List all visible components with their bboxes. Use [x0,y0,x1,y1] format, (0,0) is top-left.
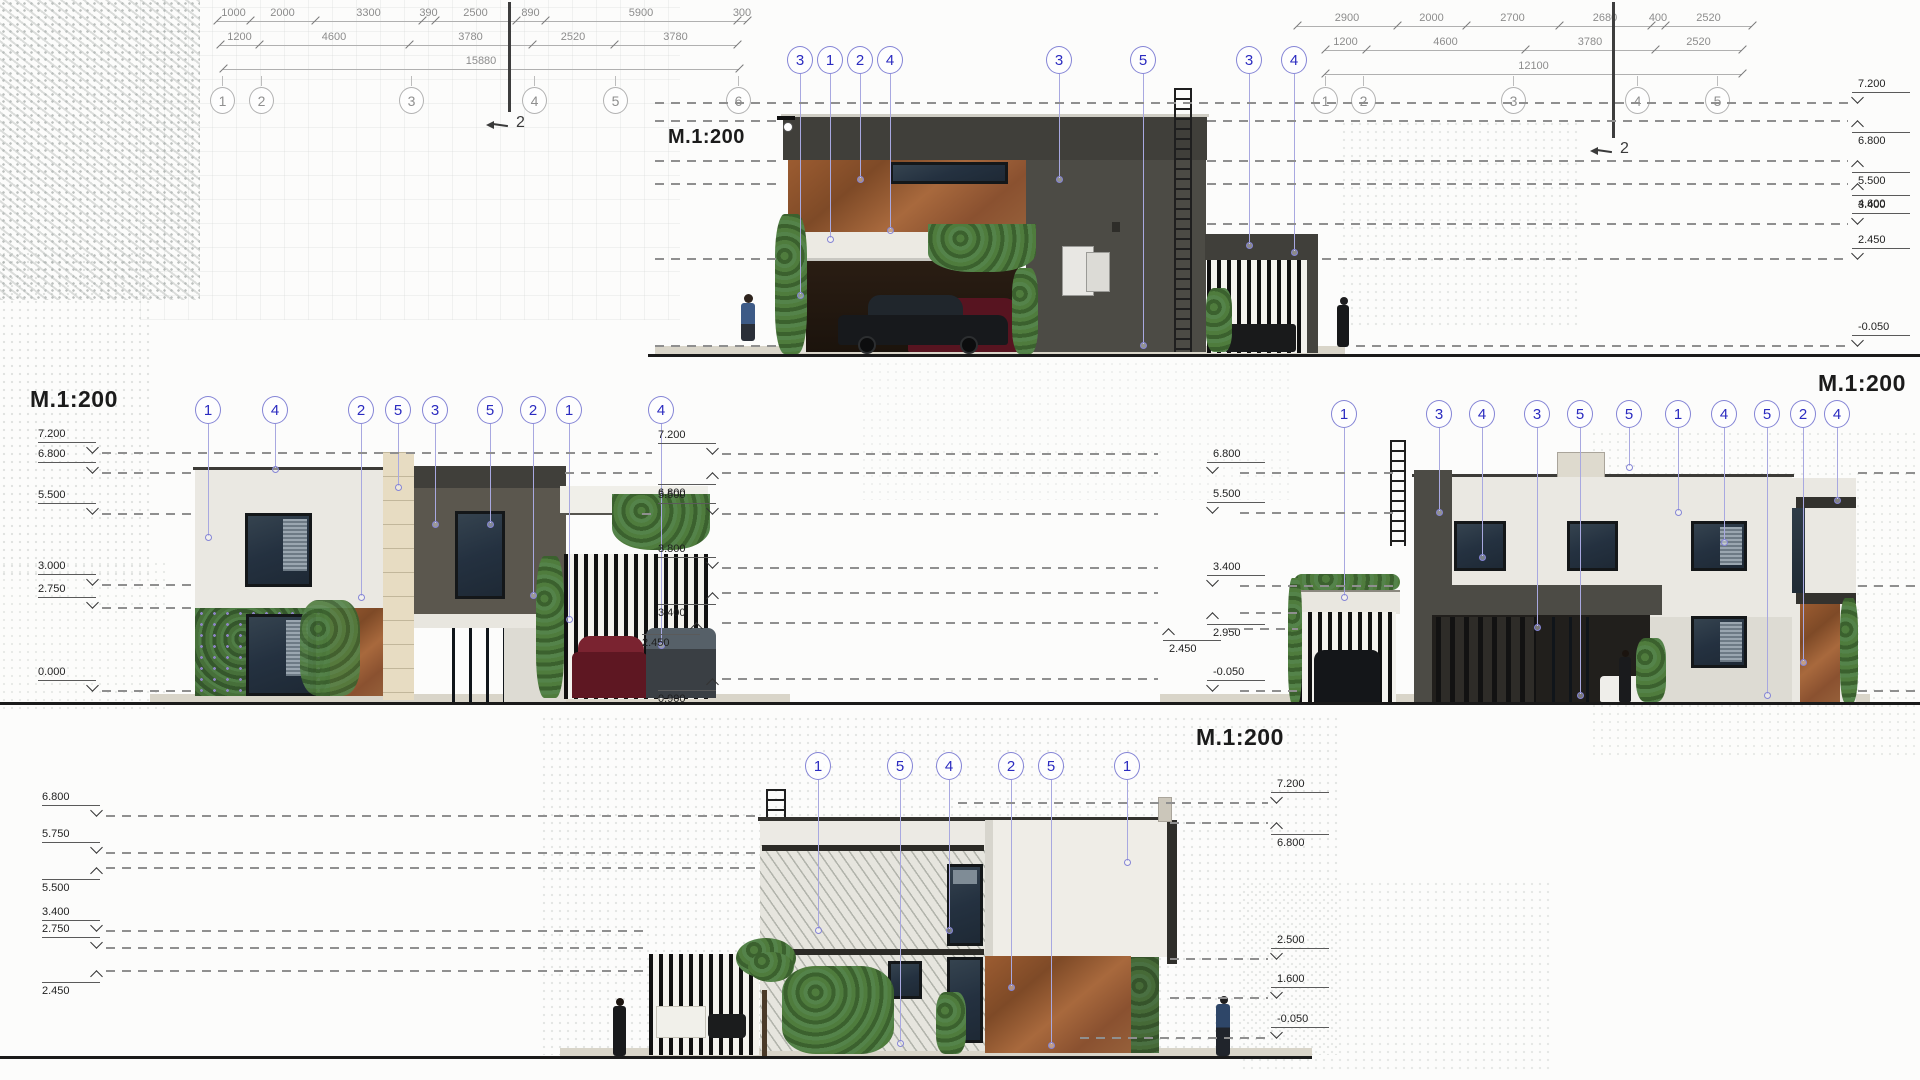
grid-bubble-stub [1513,76,1514,86]
grid-bubble: 1 [210,87,235,114]
level-arrow-icon [706,442,719,455]
level-value: 3.400 [42,906,70,918]
callout-leader-line [1629,428,1630,466]
climbing-plant [775,214,807,354]
callout-leader-dot [1800,659,1807,666]
callout-leader-dot [797,292,804,299]
dimension-label: 2520 [1674,12,1744,24]
section-cut-line [508,2,511,112]
level-value: 5.500 [42,882,70,894]
terrace-furniture [1224,324,1296,352]
callout-leader-dot [205,534,212,541]
callout-leader-line [1537,428,1538,626]
callout-leader-line [1767,428,1768,694]
callout-leader-line [800,74,801,294]
level-value: 7.200 [38,428,66,440]
level-marker-line [1852,213,1910,214]
climbing-plant [1012,268,1038,354]
callout-bubble: 4 [936,752,962,780]
level-dashed-line [1240,512,1396,514]
callout-bubble: 4 [877,46,903,74]
dimension-line [223,69,739,70]
section-cut-line [1612,2,1615,138]
parked-car-red [572,652,648,698]
callout-leader-line [1127,780,1128,861]
bottom-floor-strip [762,845,984,851]
outdoor-cabinet [656,1006,706,1038]
dimension-line [1325,74,1742,75]
person-head [1340,297,1348,305]
level-dashed-line [1080,1037,1268,1039]
dimension-label: 15880 [446,55,516,67]
callout-bubble: 3 [422,396,448,424]
level-marker-line [1207,575,1265,576]
level-value: -0.050 [1277,1013,1308,1025]
dimension-label: 2000 [1397,12,1467,24]
callout-leader-line [1678,428,1679,511]
level-dashed-line [1858,690,1918,692]
grid-bubble-stub [1325,76,1326,86]
level-value: 3.400 [658,607,686,619]
level-dashed-line [106,852,756,854]
dimension-label: 890 [496,7,566,19]
section-arrowhead-icon [486,121,494,129]
dimension-line [220,45,737,46]
callout-bubble: 2 [998,752,1024,780]
level-arrow-icon [1851,334,1864,347]
terrace-glazing [1538,617,1598,703]
callout-leader-line [1051,780,1052,1044]
dimension-label: 2520 [538,31,608,43]
level-value: 5.500 [38,489,66,501]
level-value: 5.500 [1858,175,1886,187]
level-value: -0.050 [1213,666,1244,678]
level-value: 5.500 [1213,488,1241,500]
roof-chimney [1158,797,1172,822]
grid-bubble-stub [534,76,535,86]
section-label: 2 [1620,140,1629,158]
level-value: 1.600 [1277,973,1305,985]
grid-bubble: 6 [726,87,751,114]
callout-leader-dot [1721,539,1728,546]
callout-bubble: 4 [1824,400,1850,428]
level-dashed-line [1240,472,1396,474]
mid-right-window [1454,521,1506,571]
bottom-white-block [985,820,1167,957]
callout-bubble: 4 [1281,46,1307,74]
grid-bubble-stub [1717,76,1718,86]
level-dashed-line [722,678,1158,680]
grid-bubble: 5 [1705,87,1730,114]
callout-leader-dot [857,176,864,183]
level-value: 2.500 [1277,934,1305,946]
callout-bubble: 5 [1616,400,1642,428]
scale-label: M.1:200 [1196,724,1284,751]
level-arrow-icon [90,936,103,949]
garden-plant [936,992,966,1054]
level-dashed-line [565,472,652,474]
level-value: 0.000 [38,666,66,678]
level-marker-line [38,680,96,681]
level-value: 3.400 [1858,199,1886,211]
person-head [1622,650,1629,657]
level-marker-line [1271,1027,1329,1028]
terrace-slats [1436,617,1536,703]
level-dashed-line [722,513,1158,515]
grid-bubble-stub [738,76,739,86]
callout-leader-dot [1479,554,1486,561]
callout-leader-dot [432,521,439,528]
level-marker-line [1271,987,1329,988]
level-dashed-line [106,815,756,817]
level-arrow-icon [1851,247,1864,260]
callout-bubble: 4 [1711,400,1737,428]
callout-bubble: 1 [195,396,221,424]
level-value: 7.200 [658,429,686,441]
callout-leader-dot [487,521,494,528]
grid-bubble: 3 [1501,87,1526,114]
level-arrow-icon [1206,574,1219,587]
level-value: 6.800 [1277,837,1305,849]
level-marker-line [1207,680,1265,681]
callout-leader-line [830,74,831,238]
level-value: -0.050 [1858,321,1889,333]
callout-leader-dot [1246,242,1253,249]
level-marker-line [1852,172,1910,173]
level-arrow-icon [1851,91,1864,104]
ground-line [0,702,1920,705]
level-value: 2.750 [38,583,66,595]
level-value: 5.750 [42,828,70,840]
level-marker-line [1852,132,1910,133]
level-marker-line [42,842,100,843]
level-dashed-line [1170,822,1268,824]
level-marker-line [38,503,96,504]
callout-leader-dot [1291,249,1298,256]
level-value: 2.450 [642,637,670,649]
dimension-line [217,21,747,22]
callout-leader-dot [395,484,402,491]
callout-bubble: 1 [556,396,582,424]
person-figure [1216,1004,1230,1056]
hanging-plant [928,224,1036,272]
level-dashed-line [102,452,652,454]
grid-bubble-stub [615,76,616,86]
level-arrow-icon [706,472,719,485]
callout-bubble: 1 [1665,400,1691,428]
level-dashed-line [1240,690,1298,692]
callout-leader-line [398,424,399,486]
person-figure [741,303,755,341]
callout-bubble: 5 [1567,400,1593,428]
level-dashed-line [102,690,192,692]
callout-bubble: 3 [1236,46,1262,74]
level-arrow-icon [1162,628,1175,641]
level-dashed-line [106,930,648,932]
bottom-parapet-band [760,821,986,845]
section-arrow-icon [1596,149,1612,153]
level-dashed-line [102,513,195,515]
mid-left-center-window [455,511,505,599]
bottom-edge-fin [1167,820,1177,964]
scale-label: M.1:200 [30,386,118,413]
level-dashed-line [1207,183,1848,185]
background-texture [860,360,1290,500]
background-texture [0,560,170,710]
window-blind [1720,622,1742,662]
low-garden-wall [1294,590,1400,614]
level-dashed-line [722,592,1158,594]
level-value: 6.800 [1858,135,1886,147]
callout-bubble: 2 [847,46,873,74]
grid-bubble: 3 [399,87,424,114]
grid-bubble-stub [411,76,412,86]
callout-leader-line [900,780,901,1042]
dimension-label: 2520 [1664,36,1734,48]
callout-leader-dot [566,616,573,623]
level-marker-line [1207,624,1265,625]
person-head [744,294,753,303]
callout-bubble: 3 [787,46,813,74]
level-dashed-line [655,345,783,347]
dimension-label: 2900 [1312,12,1382,24]
callout-leader-line [1803,428,1804,661]
dimension-label: 3780 [436,31,506,43]
callout-bubble: 1 [1331,400,1357,428]
grid-bubble: 5 [603,87,628,114]
callout-leader-dot [1436,509,1443,516]
callout-leader-line [533,424,534,594]
callout-leader-dot [897,1040,904,1047]
level-marker-line [42,937,100,938]
callout-bubble: 2 [1790,400,1816,428]
callout-leader-dot [1675,509,1682,516]
level-value: 6.800 [1213,448,1241,460]
level-dashed-line [102,584,195,586]
level-marker-line [38,574,96,575]
callout-leader-line [1837,428,1838,499]
grid-bubble: 4 [522,87,547,114]
level-dashed-line [722,472,1158,474]
callout-bubble: 1 [1114,752,1140,780]
bottom-block-shadow [985,820,993,957]
dimension-label: 4600 [299,31,369,43]
level-dashed-line [722,622,1158,624]
hedge [1294,574,1400,590]
level-arrow-icon [1851,120,1864,133]
car-wheel-icon [960,336,978,354]
grid-bubble: 2 [1351,87,1376,114]
level-dashed-line [642,513,652,515]
level-marker-line [42,982,100,983]
level-dashed-line [655,120,783,122]
level-dashed-line [722,567,1158,569]
dimension-label: 1200 [205,31,275,43]
drawing-sheet: M.1:200M.1:200M.1:200M.1:200100020003300… [0,0,1920,1080]
level-marker-line [38,462,96,463]
section-arrowhead-icon [1590,147,1598,155]
level-marker-line [38,442,96,443]
roof-chimney [1557,452,1605,478]
level-arrow-icon [90,867,103,880]
callout-leader-dot [887,227,894,234]
annex-side-pier [1307,260,1318,353]
garden-bush [782,966,894,1054]
level-arrow-icon [90,919,103,932]
level-dashed-line [958,802,1268,804]
mid-left-sliding-door [438,628,504,702]
grid-bubble-stub [1363,76,1364,86]
callout-bubble: 5 [1038,752,1064,780]
climbing-plant [536,556,564,698]
level-marker-line [1852,248,1910,249]
callout-bubble: 3 [1524,400,1550,428]
callout-leader-dot [358,594,365,601]
roof-access-ladder [1174,88,1192,352]
level-marker-line [658,690,716,691]
level-dashed-line [1240,612,1298,614]
level-marker-line [42,920,100,921]
level-dashed-line [1858,472,1918,474]
callout-leader-line [1482,428,1483,556]
level-arrow-icon [90,841,103,854]
level-dashed-line [655,102,1848,104]
terrace-soffit [1422,585,1662,615]
level-dashed-line [1356,345,1848,347]
level-dashed-line [1207,223,1848,225]
scale-label: M.1:200 [668,126,745,149]
climbing-plant [1288,578,1302,704]
grid-bubble-stub [222,76,223,86]
callout-leader-dot [272,466,279,473]
callout-leader-line [818,780,819,929]
callout-leader-line [1143,74,1144,344]
level-marker-line [658,604,716,605]
level-marker-line [1207,502,1265,503]
level-dashed-line [106,970,648,972]
climbing-plant [1840,598,1858,703]
level-dashed-line [1240,585,1396,587]
dimension-label: 12100 [1499,60,1569,72]
level-marker-line [1163,640,1221,641]
callout-bubble: 1 [817,46,843,74]
level-dashed-line [655,183,783,185]
roof-railing [766,789,786,817]
level-dashed-line [655,160,783,162]
mid-right-window [1567,521,1618,571]
callout-bubble: 5 [477,396,503,424]
terrace-plant [1636,638,1666,702]
level-marker-line [1271,948,1329,949]
level-dashed-line [102,472,195,474]
callout-leader-line [1011,780,1012,986]
level-value: 7.200 [1277,778,1305,790]
callout-leader-line [275,424,276,468]
level-value: 2.450 [1858,234,1886,246]
person-figure [613,1006,626,1056]
level-dashed-line [1170,997,1268,999]
callout-leader-dot [1124,859,1131,866]
callout-leader-line [1059,74,1060,178]
level-marker-line [658,557,716,558]
callout-leader-dot [1534,624,1541,631]
grid-bubble: 1 [1313,87,1338,114]
level-marker-line [1271,792,1329,793]
level-dashed-line [655,258,783,260]
section-label: 2 [516,114,525,132]
callout-leader-dot [815,927,822,934]
level-marker-line [642,634,700,635]
callout-bubble: 5 [1754,400,1780,428]
callout-bubble: 3 [1426,400,1452,428]
wing-canopy-strip [1796,497,1856,508]
level-value: 6.800 [38,448,66,460]
dimension-label: 4600 [1411,36,1481,48]
level-value: 3.400 [1213,561,1241,573]
level-dashed-line [1207,160,1848,162]
car-wheel-icon [858,336,876,354]
callout-leader-dot [1834,497,1841,504]
level-arrow-icon [1206,679,1219,692]
level-value: 5.500 [658,489,686,501]
level-marker-line [38,597,96,598]
ground-line [0,1056,1312,1059]
callout-bubble: 5 [385,396,411,424]
callout-leader-line [890,74,891,229]
dimension-label: 5900 [606,7,676,19]
level-dashed-line [1858,585,1918,587]
dimension-label: 3780 [1555,36,1625,48]
palm-trunk [762,990,767,1056]
person-figure [1337,305,1349,347]
callout-leader-line [1249,74,1250,244]
wing-corten-panel [1800,604,1840,703]
climbing-plant [300,600,360,696]
callout-leader-dot [1577,692,1584,699]
background-texture [1340,120,1580,330]
grid-bubble: 4 [1625,87,1650,114]
window-blind [283,519,307,571]
callout-leader-dot [1048,1042,1055,1049]
callout-bubble: 4 [648,396,674,424]
level-dashed-line [1170,958,1268,960]
annex-canopy [1205,234,1318,260]
callout-leader-dot [1056,176,1063,183]
level-arrow-icon [1206,612,1219,625]
roof-access-ladder [1390,440,1406,546]
callout-bubble: 5 [1130,46,1156,74]
level-marker-line [658,484,716,485]
callout-bubble: 1 [805,752,831,780]
level-arrow-icon [706,556,719,569]
callout-leader-line [1580,428,1581,694]
person-figure [1619,657,1631,703]
callout-bubble: 5 [887,752,913,780]
level-arrow-icon [1851,160,1864,173]
callout-leader-line [1724,428,1725,541]
level-marker-line [1852,335,1910,336]
wall-lamp-icon [1112,222,1120,232]
level-value: 6.800 [42,791,70,803]
person-head [616,998,624,1006]
callout-leader-line [490,424,491,523]
level-dashed-line [1322,258,1848,260]
callout-leader-line [435,424,436,523]
scale-label: M.1:200 [1818,370,1906,397]
level-marker-line [42,805,100,806]
level-marker-line [1271,834,1329,835]
level-dashed-line [106,947,648,949]
